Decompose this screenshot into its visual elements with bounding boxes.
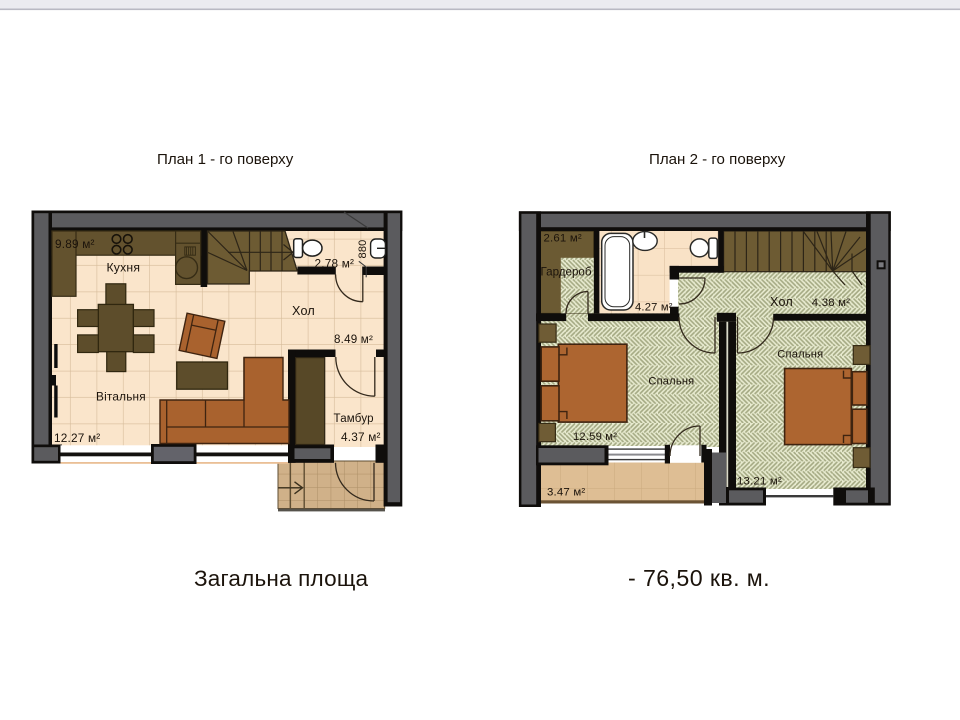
svg-text:Спальня: Спальня <box>648 376 694 388</box>
svg-text:3.47 м²: 3.47 м² <box>547 487 585 499</box>
svg-text:Гардероб: Гардероб <box>541 266 592 279</box>
svg-text:12.27 м²: 12.27 м² <box>54 431 100 445</box>
svg-text:13.21 м²: 13.21 м² <box>737 476 782 488</box>
svg-text:Хол: Хол <box>292 304 315 318</box>
svg-text:9.89 м²: 9.89 м² <box>55 237 95 251</box>
svg-text:План 1 - го поверху: План 1 - го поверху <box>157 151 294 168</box>
svg-text:4.38 м²: 4.38 м² <box>812 297 850 309</box>
svg-text:4.37 м²: 4.37 м² <box>341 430 381 444</box>
svg-text:Спальня: Спальня <box>777 349 823 361</box>
svg-text:Загальна площа: Загальна площа <box>194 566 369 591</box>
svg-text:Кухня: Кухня <box>107 261 141 275</box>
svg-text:2.78 м²: 2.78 м² <box>315 257 355 271</box>
svg-text:12.59 м²: 12.59 м² <box>573 431 617 443</box>
svg-text:- 76,50 кв. м.: - 76,50 кв. м. <box>628 565 770 591</box>
svg-text:Вітальня: Вітальня <box>96 389 146 403</box>
svg-text:Тамбур: Тамбур <box>334 413 374 425</box>
svg-text:План 2 - го поверху: План 2 - го поверху <box>649 151 786 168</box>
svg-text:880: 880 <box>357 240 369 259</box>
svg-text:8.49 м²: 8.49 м² <box>334 333 373 346</box>
svg-text:Хол: Хол <box>770 295 793 309</box>
svg-text:4.27 м²: 4.27 м² <box>635 302 673 314</box>
svg-text:2.61 м²: 2.61 м² <box>544 233 582 245</box>
